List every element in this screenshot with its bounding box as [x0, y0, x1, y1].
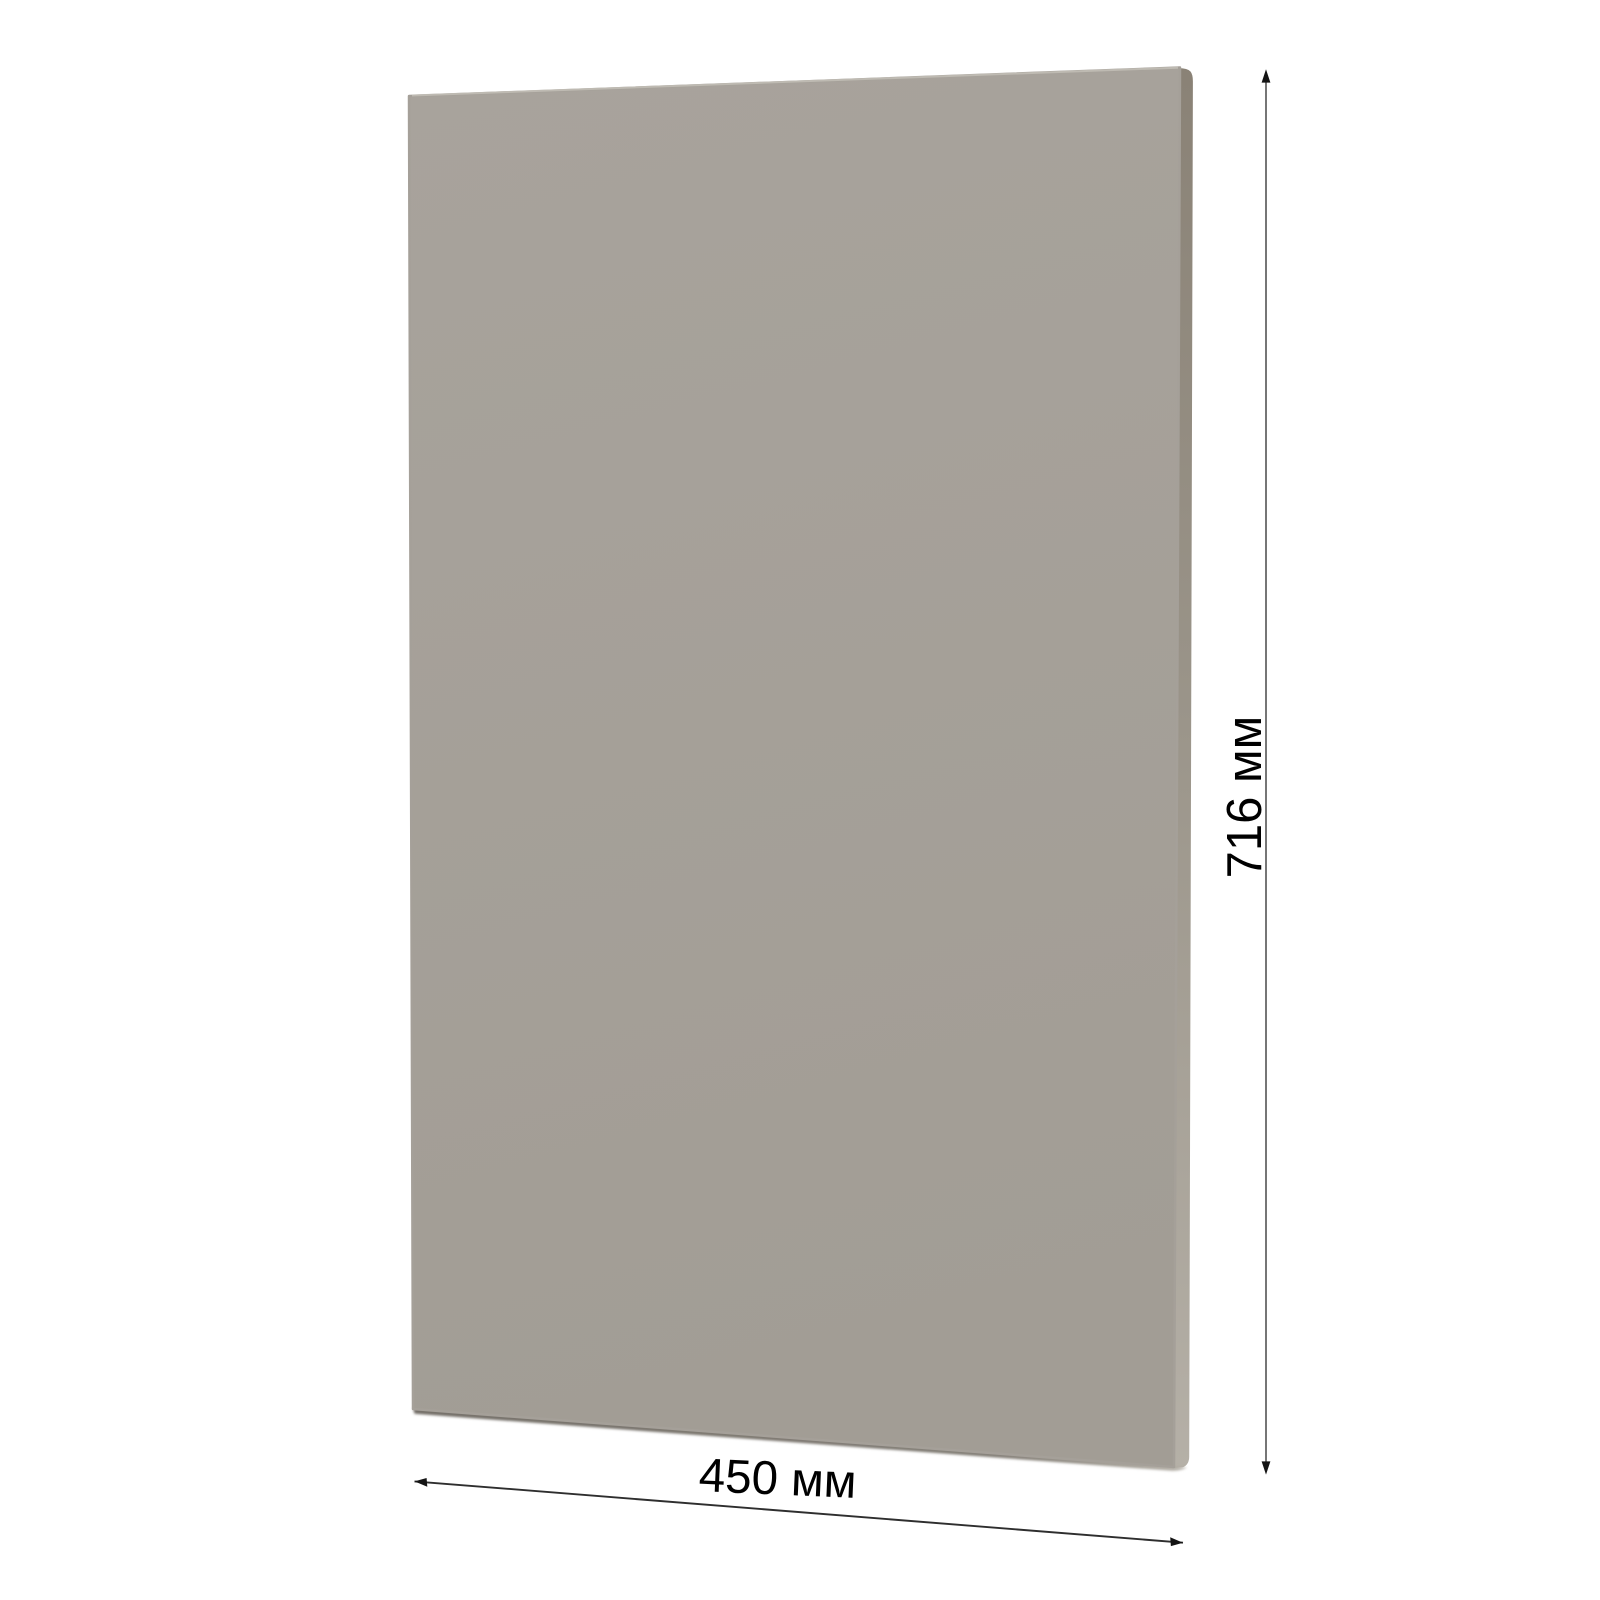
svg-text:450 мм: 450 мм — [698, 1449, 858, 1509]
svg-text:716 мм: 716 мм — [1218, 716, 1272, 879]
